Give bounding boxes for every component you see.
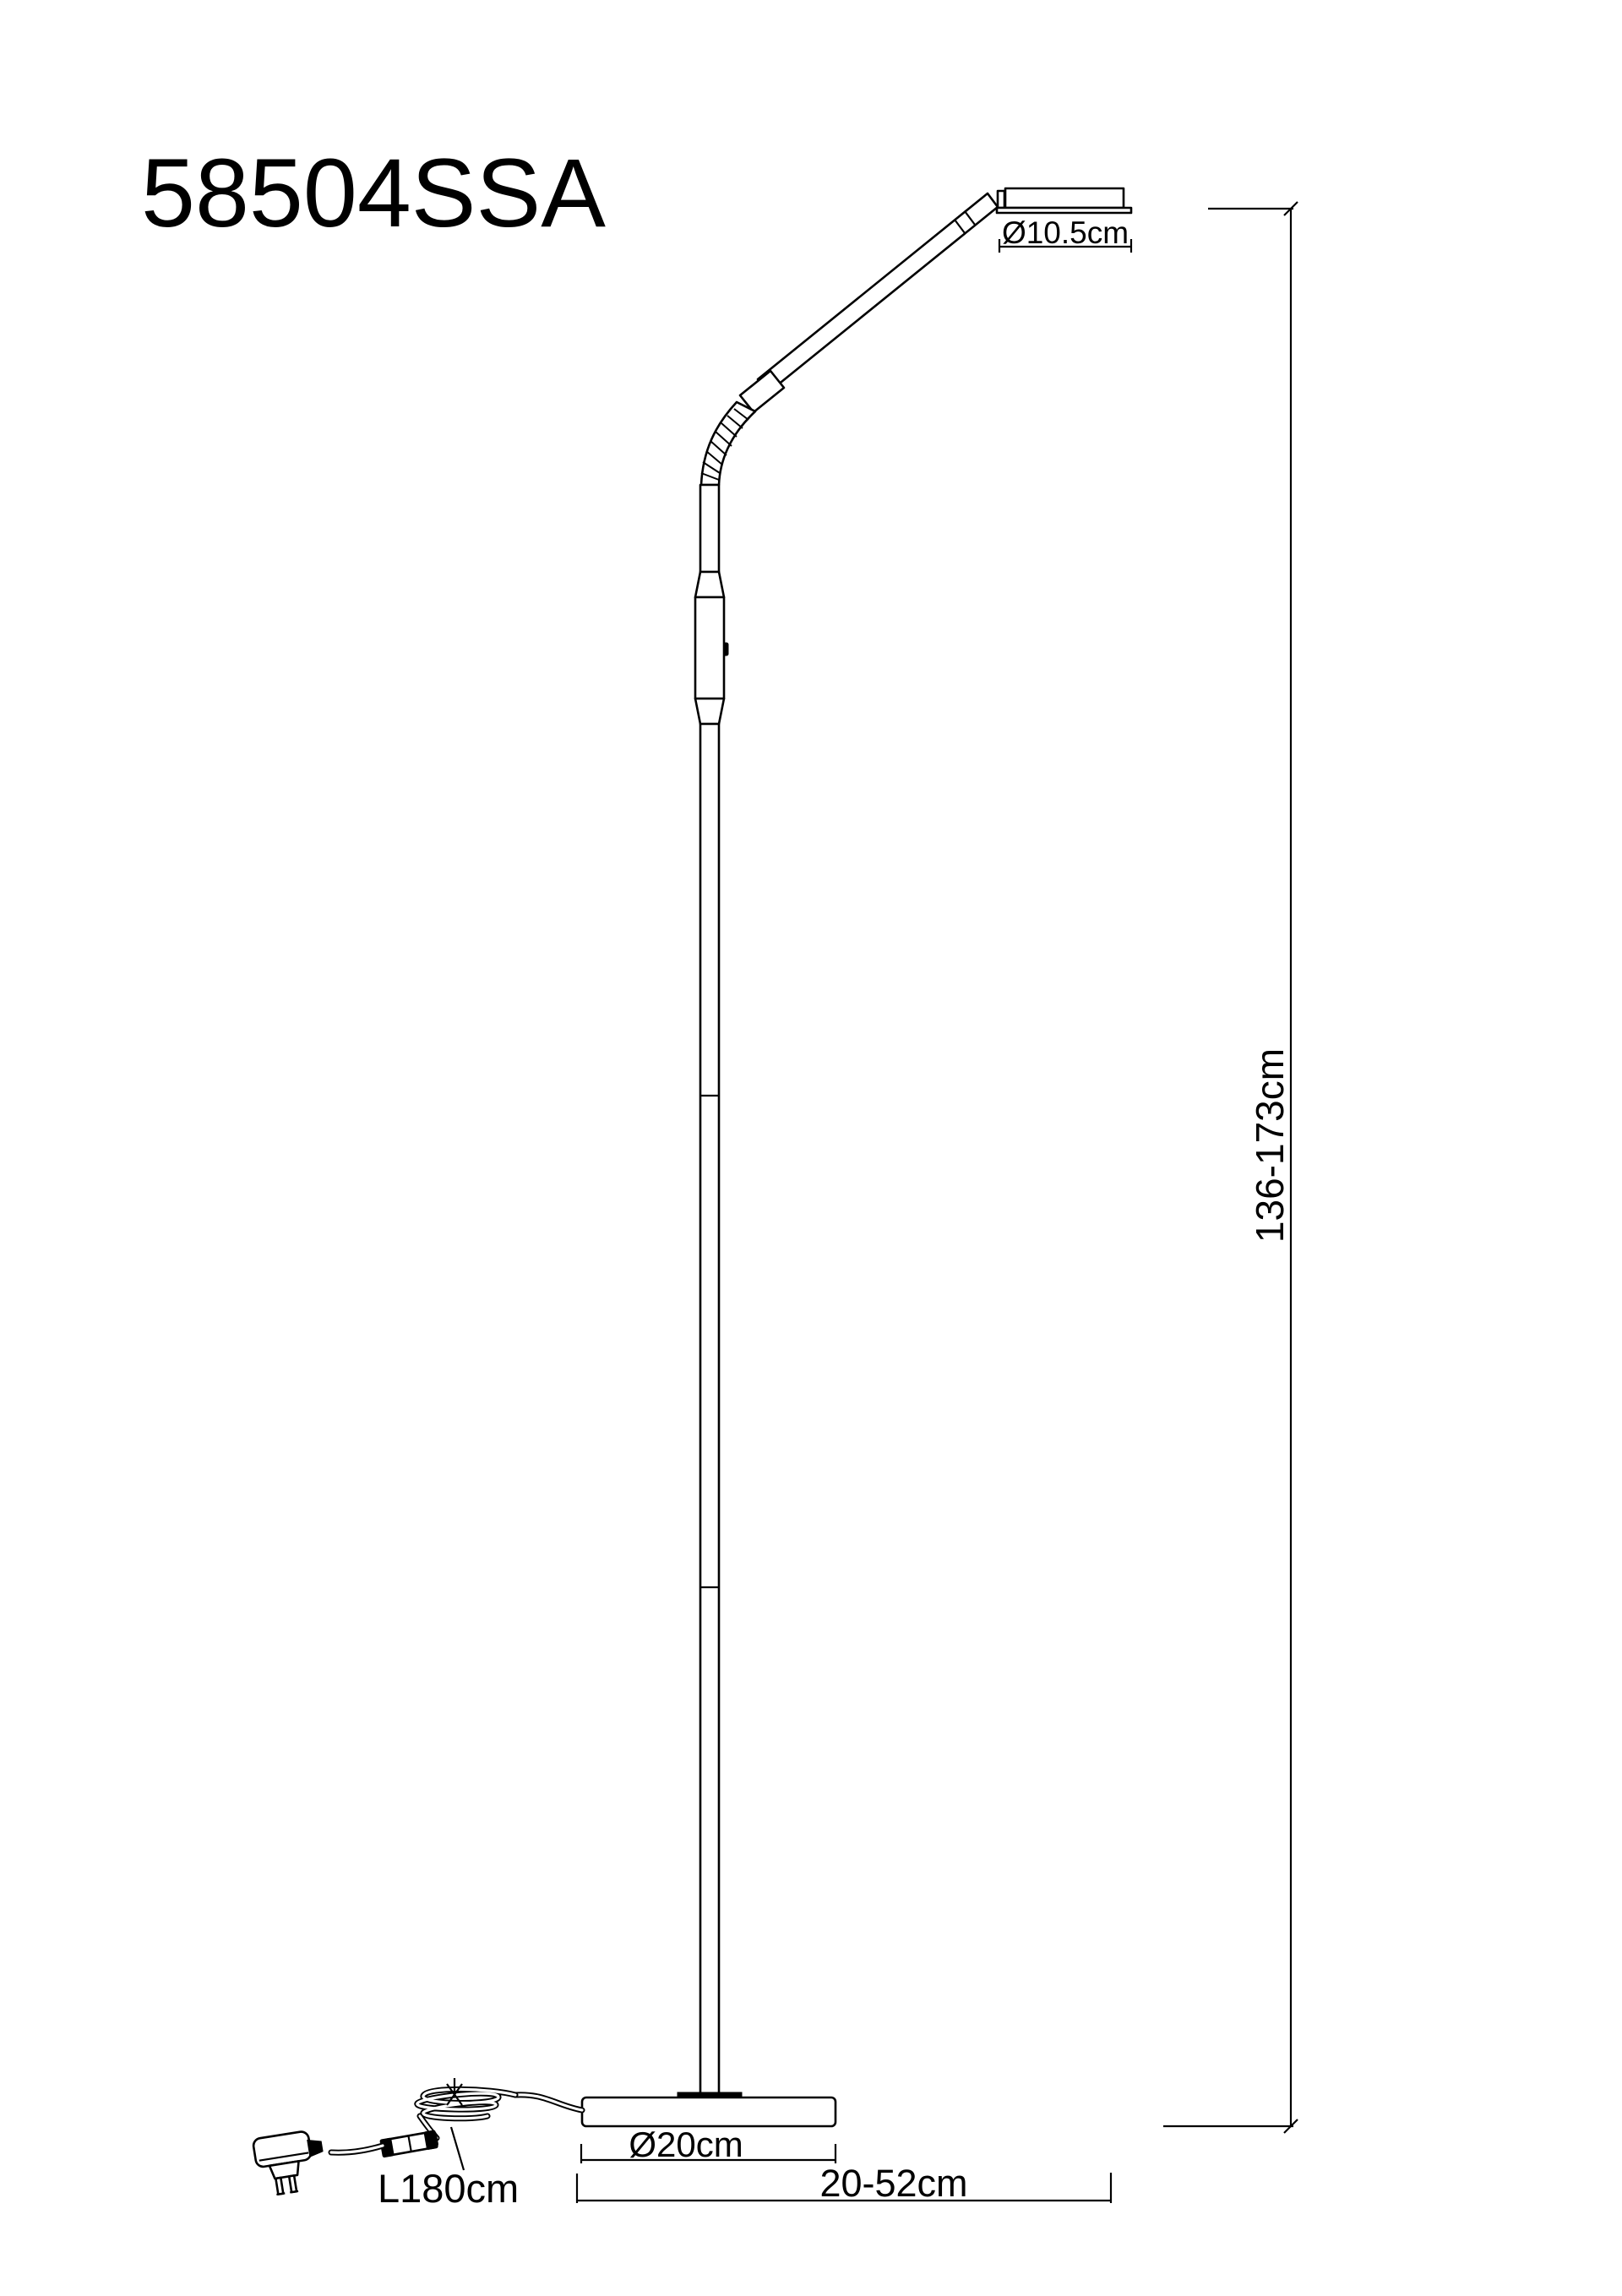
pole-lower-segment — [700, 724, 719, 2096]
inline-connector — [380, 2130, 438, 2157]
lamp-arm — [740, 193, 998, 412]
height-range-label: 136-173cm — [1248, 1048, 1292, 1243]
pole-upper-segment — [700, 485, 719, 572]
switch-housing-taper-top — [695, 572, 724, 597]
plug-strain-relief — [308, 2138, 324, 2157]
switch-housing-taper-bottom — [695, 699, 724, 724]
plug-pin-tip — [276, 2193, 285, 2195]
lamp-pole — [695, 485, 728, 2096]
plug-pin-tip — [290, 2191, 298, 2193]
plug-body — [253, 2130, 313, 2168]
dimension-base-diameter: Ø20cm — [581, 2125, 835, 2164]
technical-drawing-sheet: 58504SSA — [0, 0, 1622, 2296]
base-disc — [582, 2097, 835, 2126]
head-diameter-label: Ø10.5cm — [1002, 215, 1129, 250]
reach-range-label: 20-52cm — [819, 2162, 967, 2205]
lamp-base — [582, 2092, 835, 2126]
plug-pin — [289, 2175, 297, 2192]
head-diffuser-plate — [997, 208, 1131, 213]
head-hinge-bracket — [998, 191, 1004, 208]
head-body — [1005, 188, 1124, 208]
product-code-title: 58504SSA — [141, 139, 606, 248]
plug-pin — [275, 2178, 283, 2195]
base-diameter-label: Ø20cm — [629, 2125, 743, 2164]
gooseneck — [701, 402, 755, 485]
switch-housing — [695, 597, 724, 699]
power-plug — [253, 2129, 329, 2197]
arm-tube — [758, 193, 998, 393]
dimension-height: 136-173cm — [1163, 202, 1298, 2133]
lamp-head — [997, 188, 1131, 213]
cable-length-label: L180cm — [378, 2166, 519, 2211]
dimension-head-diameter: Ø10.5cm — [999, 215, 1131, 253]
dimension-reach: 20-52cm — [577, 2162, 1111, 2205]
leader-line — [451, 2127, 464, 2170]
